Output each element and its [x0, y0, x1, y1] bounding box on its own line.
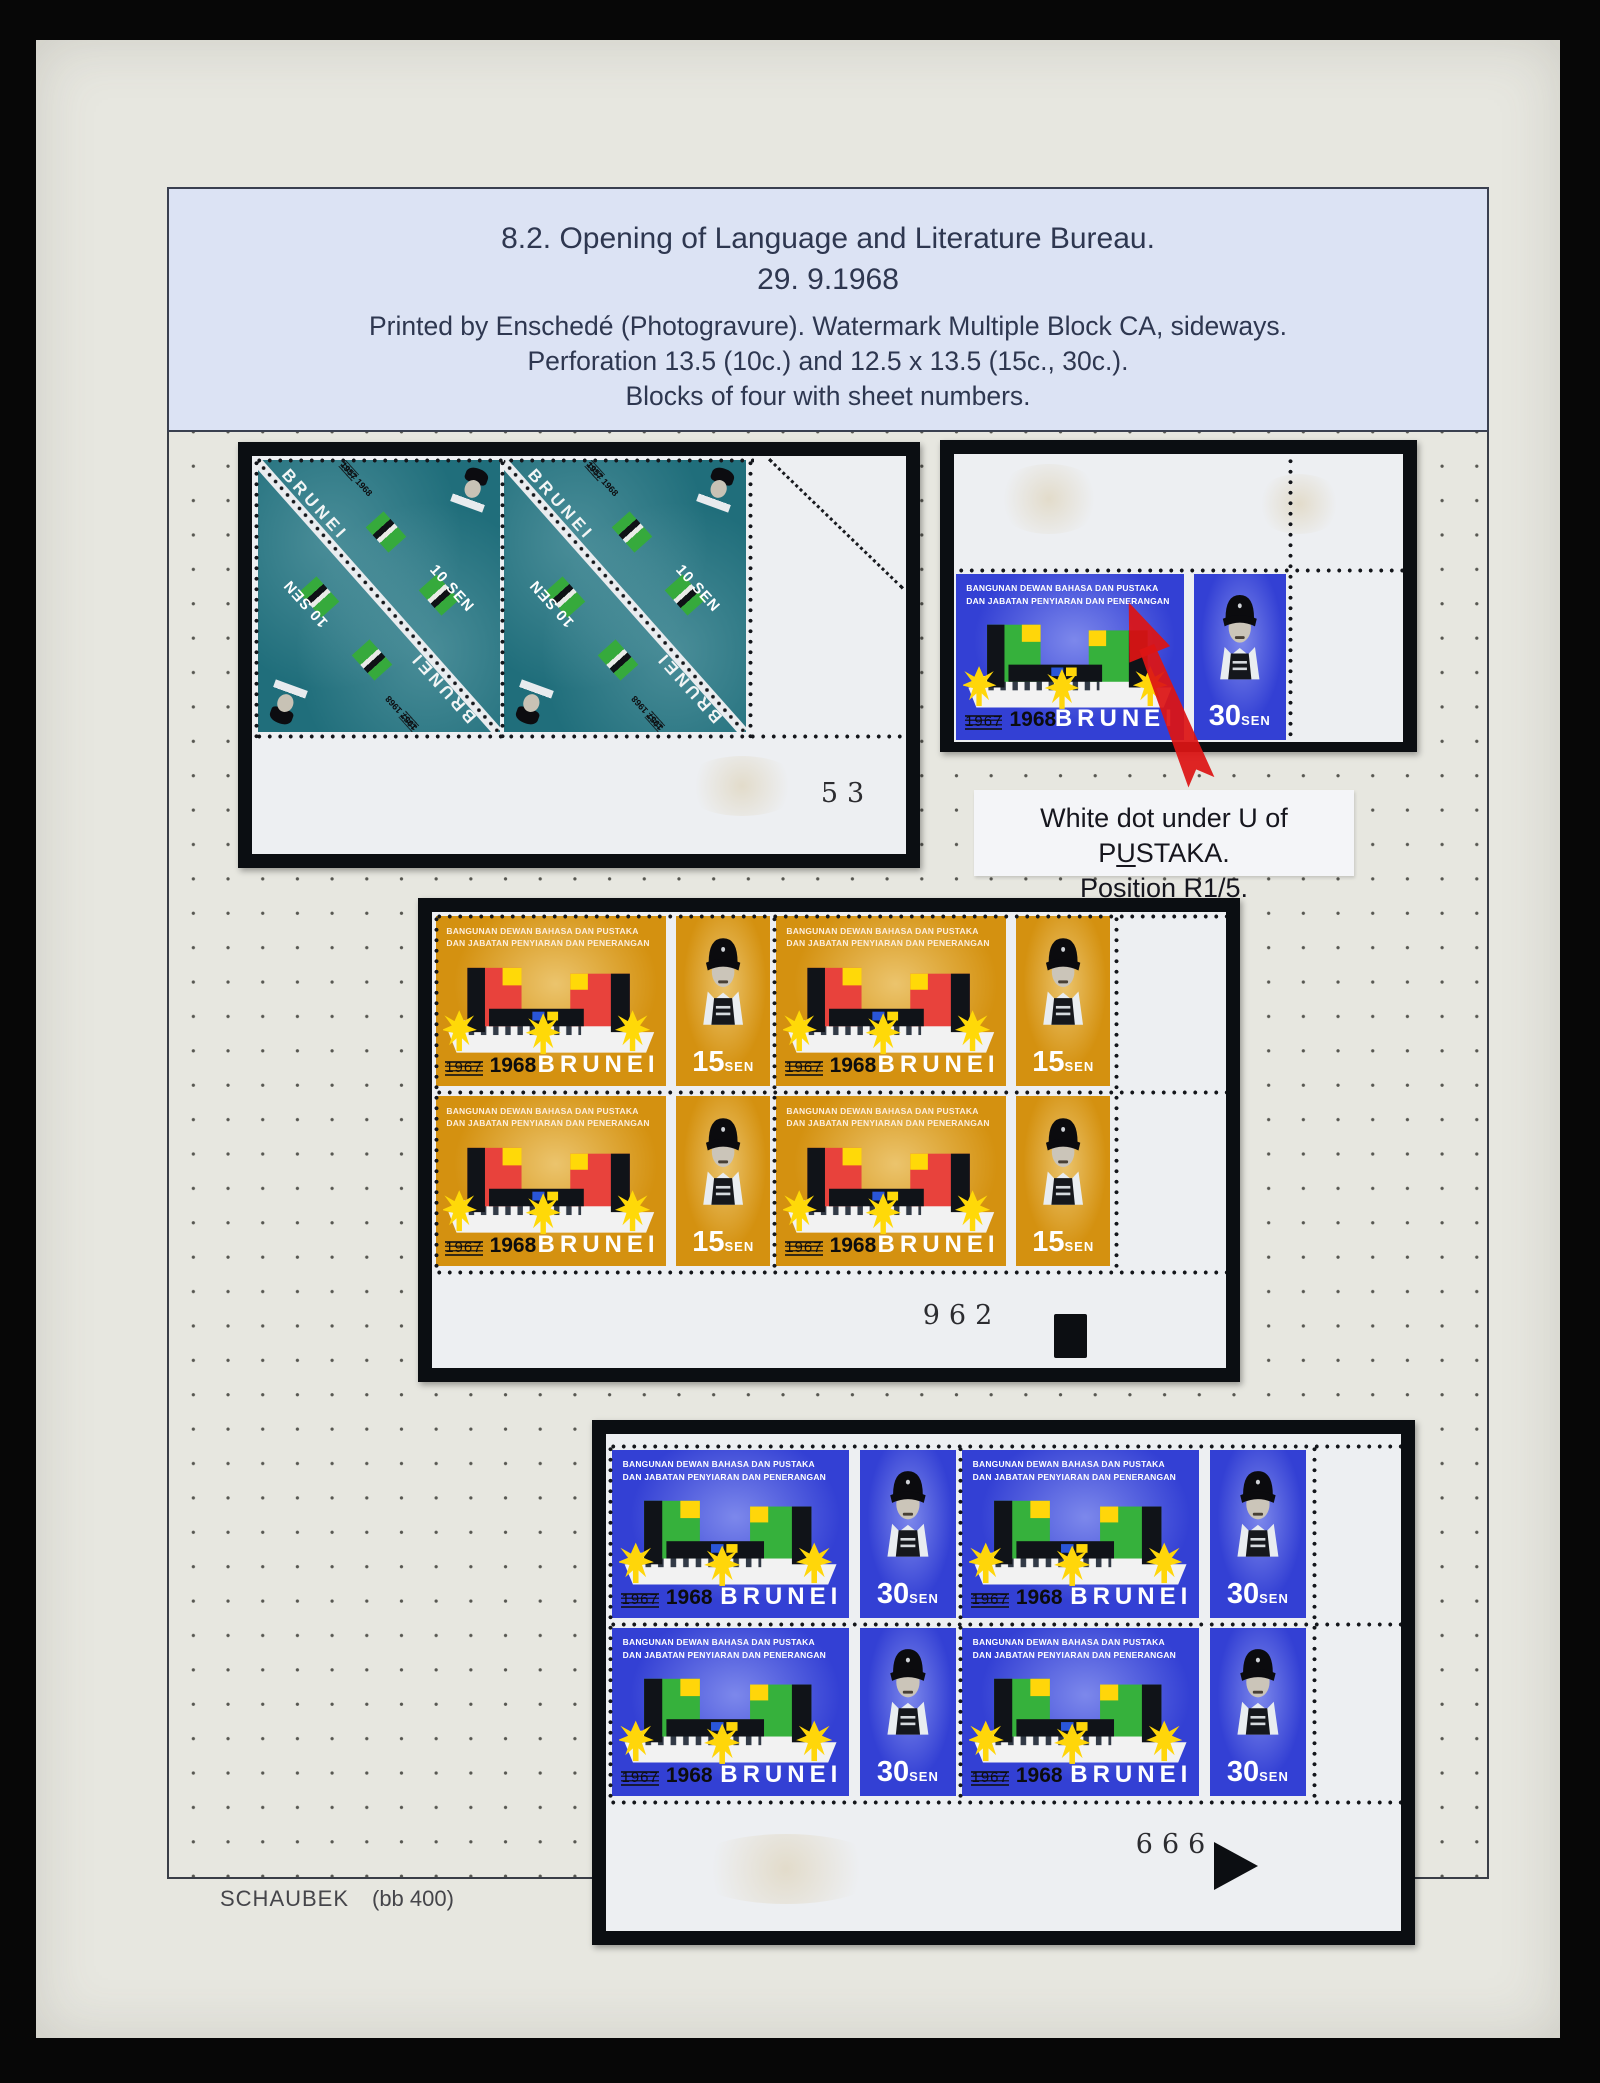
stamp-value: 30SEN — [1210, 1756, 1306, 1789]
library-building-icon — [783, 962, 1000, 1056]
perforation-column — [956, 1442, 963, 1804]
perforation-row — [432, 1088, 1226, 1095]
stamp-15sen: BANGUNAN DEWAN BAHASA DAN PUSTAKADAN JAB… — [776, 1096, 1110, 1266]
stamp-value: 15SEN — [676, 1046, 770, 1079]
sultan-portrait-icon — [696, 1105, 750, 1207]
library-building-icon — [619, 1673, 842, 1765]
sultan-portrait-icon — [880, 1458, 936, 1559]
stamp-value: 30SEN — [860, 1578, 956, 1611]
perforation-column — [606, 1442, 613, 1804]
triangle-stamp-pair: BRUNEI BRUNEI 10 SEN 10 SEN 1957 1968 19… — [504, 460, 746, 732]
caption-line1: White dot under U of PUSTAKA. — [974, 801, 1354, 871]
overprint: 19671968 — [445, 1054, 536, 1078]
stamp-15sen: BANGUNAN DEWAN BAHASA DAN PUSTAKADAN JAB… — [776, 916, 1110, 1086]
library-building-icon — [443, 962, 660, 1056]
registration-triangle-mark — [1214, 1842, 1258, 1890]
stamp-inscription: BANGUNAN DEWAN BAHASA DAN PUSTAKADAN JAB… — [623, 1458, 826, 1484]
library-building-icon — [783, 1142, 1000, 1236]
toning-spot — [686, 1834, 886, 1904]
library-building-icon — [969, 1495, 1192, 1587]
toning-spot — [1254, 474, 1344, 534]
sultan-portrait-icon — [262, 679, 308, 728]
perforation-row — [954, 566, 1403, 573]
stamp-block-10c-mount: BRUNEI BRUNEI 10 SEN 10 SEN 1957 1968 19… — [238, 442, 920, 868]
sultan-portrait-icon — [508, 679, 554, 728]
sultan-portrait-icon — [697, 464, 743, 513]
overprint: 19671968 — [971, 1586, 1062, 1610]
overprint: 19671968 — [971, 1764, 1062, 1788]
perforation-column — [498, 456, 505, 739]
printing-note: Printed by Enschedé (Photogravure). Wate… — [169, 309, 1487, 344]
stamp-inscription: BANGUNAN DEWAN BAHASA DAN PUSTAKADAN JAB… — [446, 925, 649, 951]
library-building-icon — [443, 1142, 660, 1236]
stamp-block-30c-sheet: BANGUNAN DEWAN BAHASA DAN PUSTAKADAN JAB… — [606, 1434, 1401, 1931]
perforation-column — [1310, 1442, 1317, 1804]
caption-line2: Position R1/5. — [974, 871, 1354, 906]
perforation-column — [252, 456, 259, 739]
sultan-portrait-icon — [1230, 1458, 1286, 1559]
stamp-inscription: BANGUNAN DEWAN BAHASA DAN PUSTAKADAN JAB… — [973, 1458, 1176, 1484]
stamp-value: 15SEN — [1016, 1226, 1110, 1259]
overprint: 19671968 — [621, 1764, 712, 1788]
overprint: 1957 1968 — [339, 460, 375, 498]
country-name: BRUNEI — [1070, 1583, 1192, 1611]
perforation-column — [1112, 912, 1119, 1274]
country-name: BRUNEI — [720, 1761, 842, 1789]
library-building-icon — [619, 1495, 842, 1587]
blocks-note: Blocks of four with sheet numbers. — [169, 379, 1487, 414]
stamp-inscription: BANGUNAN DEWAN BAHASA DAN PUSTAKADAN JAB… — [786, 925, 989, 951]
sultan-portrait-icon — [1036, 1105, 1090, 1207]
stamp-inscription: BANGUNAN DEWAN BAHASA DAN PUSTAKADAN JAB… — [786, 1105, 989, 1131]
sultan-portrait-icon — [1213, 582, 1267, 682]
sheet-number-15c: 962 — [892, 1300, 1032, 1331]
overprint: 1957 1968 — [629, 694, 665, 732]
building-deco — [597, 640, 638, 681]
stamp-inscription: BANGUNAN DEWAN BAHASA DAN PUSTAKADAN JAB… — [623, 1636, 826, 1662]
perforation-row — [606, 1798, 1401, 1805]
country-name: BRUNEI — [1070, 1761, 1192, 1789]
toning-spot — [682, 756, 802, 816]
building-deco — [366, 511, 407, 552]
stamp-block-30c-mount: BANGUNAN DEWAN BAHASA DAN PUSTAKADAN JAB… — [592, 1420, 1415, 1945]
sultan-portrait-icon — [1230, 1636, 1286, 1737]
perforation-column — [770, 912, 777, 1274]
stamp-inscription: BANGUNAN DEWAN BAHASA DAN PUSTAKADAN JAB… — [446, 1105, 649, 1131]
overprint: 19671968 — [785, 1054, 876, 1078]
overprint: 19671968 — [445, 1234, 536, 1258]
stamp-15sen: BANGUNAN DEWAN BAHASA DAN PUSTAKADAN JAB… — [436, 916, 770, 1086]
stamp-block-15c-sheet: BANGUNAN DEWAN BAHASA DAN PUSTAKADAN JAB… — [432, 912, 1226, 1368]
perforation-column — [1286, 454, 1293, 742]
overprint: 19671968 — [621, 1586, 712, 1610]
overprint: 19671968 — [785, 1234, 876, 1258]
perforation-row — [606, 1442, 1401, 1449]
stamp-value: 30SEN — [1210, 1578, 1306, 1611]
album-publisher: SCHAUBEK — [220, 1886, 349, 1912]
perforation-note: Perforation 13.5 (10c.) and 12.5 x 13.5 … — [169, 344, 1487, 379]
building-deco — [351, 640, 392, 681]
stamp-30sen: BANGUNAN DEWAN BAHASA DAN PUSTAKADAN JAB… — [962, 1450, 1306, 1618]
overprint: 1957 1968 — [383, 694, 419, 732]
stamp-30sen: BANGUNAN DEWAN BAHASA DAN PUSTAKADAN JAB… — [612, 1628, 956, 1796]
country-name: BRUNEI — [652, 647, 727, 727]
corner-cut-perforation — [768, 458, 904, 589]
toning-spot — [994, 464, 1104, 534]
stamp-30sen: BANGUNAN DEWAN BAHASA DAN PUSTAKADAN JAB… — [612, 1450, 956, 1618]
sultan-portrait-icon — [451, 464, 497, 513]
perforation-row — [606, 1620, 1401, 1627]
stamp-value: 15SEN — [1016, 1046, 1110, 1079]
album-page-ref: (bb 400) — [372, 1886, 454, 1912]
sultan-portrait-icon — [880, 1636, 936, 1737]
overprint: 1957 1968 — [585, 460, 621, 498]
album-page-scan: 8.2. Opening of Language and Literature … — [0, 0, 1600, 2083]
country-name: BRUNEI — [720, 1583, 842, 1611]
page-title: 8.2. Opening of Language and Literature … — [169, 219, 1487, 260]
stamp-portrait-panel: 30SEN — [1194, 574, 1286, 740]
country-name: BRUNEI — [538, 1231, 660, 1259]
country-name: BRUNEI — [878, 1231, 1000, 1259]
stamp-block-10c-sheet: BRUNEI BRUNEI 10 SEN 10 SEN 1957 1968 19… — [252, 456, 906, 854]
header-box: 8.2. Opening of Language and Literature … — [167, 187, 1489, 432]
country-name: BRUNEI — [406, 647, 481, 727]
variety-caption: White dot under U of PUSTAKA. Position R… — [974, 790, 1354, 876]
perforation-column — [432, 912, 439, 1274]
perforation-row — [252, 732, 906, 739]
stamp-30sen: BANGUNAN DEWAN BAHASA DAN PUSTAKADAN JAB… — [962, 1628, 1306, 1796]
country-name: BRUNEI — [538, 1051, 660, 1079]
stamp-15sen: BANGUNAN DEWAN BAHASA DAN PUSTAKADAN JAB… — [436, 1096, 770, 1266]
sultan-portrait-icon — [1036, 925, 1090, 1027]
perforation-column — [746, 456, 753, 739]
overprint: 19671968 — [965, 708, 1056, 732]
stamp-value: 30SEN — [860, 1756, 956, 1789]
country-name: BRUNEI — [878, 1051, 1000, 1079]
triangle-stamp-pair: BRUNEI BRUNEI 10 SEN 10 SEN 1957 1968 19… — [258, 460, 500, 732]
stamp-value: 15SEN — [676, 1226, 770, 1259]
perforation-row — [432, 1268, 1226, 1275]
library-building-icon — [969, 1673, 1192, 1765]
building-deco — [612, 511, 653, 552]
registration-square-mark — [1054, 1314, 1087, 1358]
stamp-inscription: BANGUNAN DEWAN BAHASA DAN PUSTAKADAN JAB… — [973, 1636, 1176, 1662]
perforation-row — [432, 912, 1226, 919]
stamp-block-15c-mount: BANGUNAN DEWAN BAHASA DAN PUSTAKADAN JAB… — [418, 898, 1240, 1382]
issue-date: 29. 9.1968 — [169, 260, 1487, 299]
sheet-number-30c: 999 — [1111, 1826, 1221, 1857]
sultan-portrait-icon — [696, 925, 750, 1027]
